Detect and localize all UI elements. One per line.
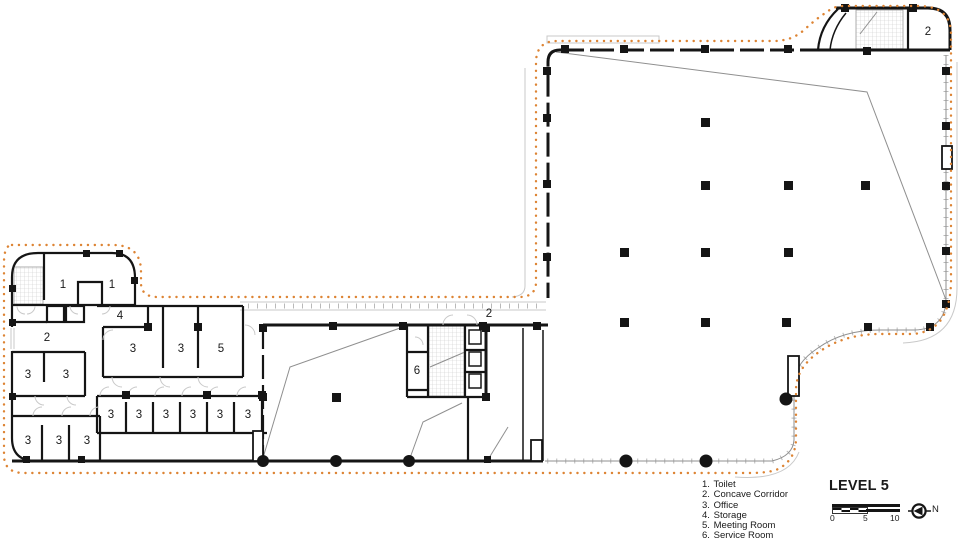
room-number: 3 <box>25 369 31 381</box>
north-arrow-icon <box>905 501 933 521</box>
floor-plan-drawing: 112433533333333333622 <box>0 0 960 557</box>
diagonal-lines <box>263 52 946 458</box>
legend-item: 6. Service Room <box>702 531 788 541</box>
stair-west-hatch <box>14 267 43 304</box>
north-arrow: N <box>905 501 947 521</box>
scale-bar-ticks: 0510 <box>832 512 900 522</box>
office-block-a-walls <box>12 352 85 396</box>
walls <box>8 8 950 461</box>
room-number: 3 <box>245 409 251 421</box>
room-number: 3 <box>190 409 196 421</box>
room-number: 4 <box>117 310 124 322</box>
room-number: 1 <box>109 279 115 291</box>
scale-bar: 0510 <box>832 504 900 522</box>
legend-item-label: Service Room <box>711 530 773 541</box>
room-number: 3 <box>163 409 169 421</box>
room-number: 6 <box>414 365 420 377</box>
room-number: 1 <box>60 279 66 291</box>
scale-tick: 0 <box>830 513 835 523</box>
room-number: 2 <box>925 26 931 38</box>
room-number: 3 <box>136 409 142 421</box>
room-number: 3 <box>178 343 184 355</box>
columns-round <box>257 393 793 468</box>
corridor-glazing <box>240 302 546 310</box>
floor-plan-sheet: 112433533333333333622 1. Toilet2. Concav… <box>0 0 960 557</box>
toilet-block-outer-wall <box>38 253 135 306</box>
room-number: 3 <box>56 435 62 447</box>
room-number: 5 <box>218 343 224 355</box>
scale-tick: 5 <box>863 513 868 523</box>
room-number: 3 <box>108 409 114 421</box>
building-outline-dotted <box>4 6 951 473</box>
stairs <box>14 10 903 396</box>
legend-item-number: 6. <box>702 531 711 541</box>
curtain-wall-edges <box>545 55 946 461</box>
office-row-walls <box>97 396 267 433</box>
columns-square <box>9 4 950 463</box>
balcony-door <box>788 356 799 396</box>
room-number: 3 <box>130 343 136 355</box>
room-number: 3 <box>63 369 69 381</box>
room-number: 2 <box>44 332 50 344</box>
room-number: 3 <box>217 409 223 421</box>
canopy-edge-lines <box>512 36 957 477</box>
sheet-title: LEVEL 5 <box>829 478 889 494</box>
room-number: 2 <box>486 308 492 320</box>
legend: 1. Toilet2. Concave Corridor3. Office4. … <box>702 480 788 542</box>
north-label: N <box>932 504 939 515</box>
room-number: 3 <box>84 435 90 447</box>
stair-core-hatch <box>429 326 464 396</box>
scale-tick: 10 <box>890 513 899 523</box>
room-number: 3 <box>25 435 31 447</box>
